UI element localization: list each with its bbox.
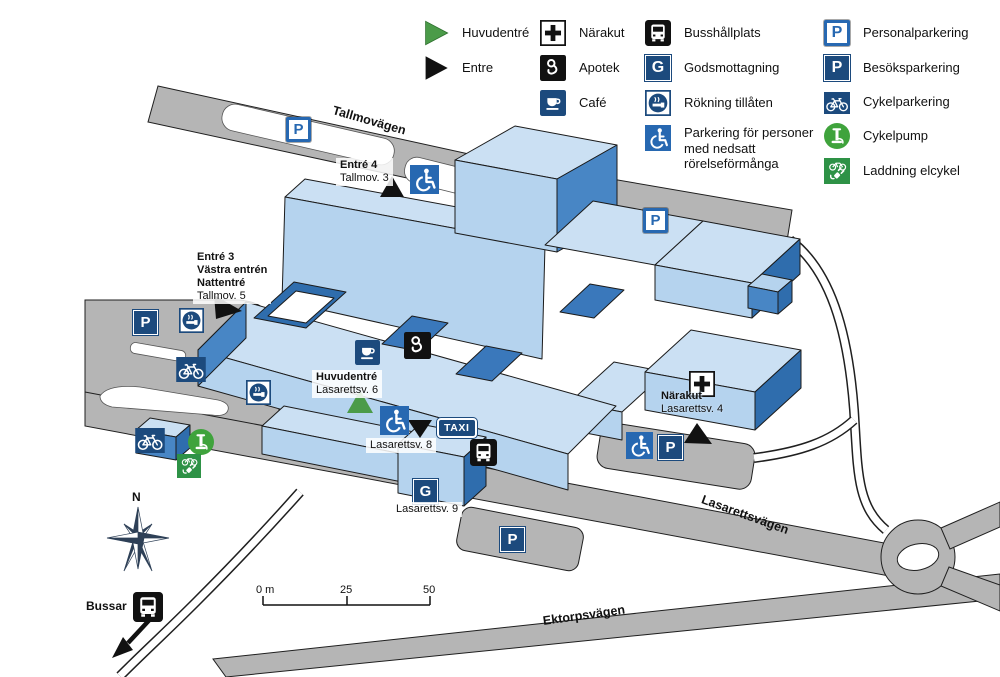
legend-label: Huvudentré (462, 25, 529, 41)
parking-letter: P (665, 440, 675, 455)
legend-item-cafe: Café (540, 90, 625, 116)
road-ektorpsvagen (213, 574, 1000, 677)
lasarettsv9-label: Lasarettsv. 9 (392, 502, 462, 517)
legend-label: Cykelparkering (863, 94, 950, 110)
bicycle-pump-icon (824, 123, 850, 149)
visitor-parking-icon: P (824, 55, 850, 81)
wheelchair-icon (626, 432, 653, 459)
narakut-triangle-icon (684, 423, 712, 444)
legend-column-4: P Personalparkering P Besöksparkering Cy… (824, 20, 969, 193)
parking-letter: P (650, 213, 660, 228)
legend-item-besoksparkering: P Besöksparkering (824, 55, 969, 81)
scale-bar (263, 596, 430, 605)
bicycle-parking-icon (135, 428, 165, 453)
bus-stop-icon (133, 592, 163, 622)
legend-label: Personalparkering (863, 25, 969, 41)
legend-label: Rökning tillåten (684, 95, 773, 111)
scale-label-25: 25 (340, 584, 352, 596)
legend-label: Apotek (579, 60, 619, 76)
goods-reception-icon: G (413, 479, 438, 504)
bicycle-pump-icon (188, 429, 214, 455)
parking-letter: P (507, 532, 517, 547)
legend-item-personalparkering: P Personalparkering (824, 20, 969, 46)
pharmacy-icon (404, 332, 431, 359)
wheelchair-icon (410, 165, 439, 194)
legend-item-apotek: Apotek (540, 55, 625, 81)
emergency-clinic-icon (540, 20, 566, 46)
goods-letter: G (420, 484, 432, 499)
cafe-icon (540, 90, 566, 116)
staff-parking-icon: P (286, 117, 311, 142)
legend-item-narakut: Närakut (540, 20, 625, 46)
taxi-sign-icon: TAXI (437, 418, 477, 438)
staff-parking-icon: P (643, 208, 668, 233)
bussar-label: Bussar (86, 599, 127, 613)
legend-label: Närakut (579, 25, 625, 41)
entrance-4-label: Entré 4 Tallmov. 3 (336, 158, 393, 186)
legend-label: Cykelpump (863, 128, 928, 144)
entrance-3-label: Entré 3 Västra entrén Nattentré Tallmov.… (193, 250, 271, 304)
disabled-parking-icon (645, 125, 671, 151)
bicycle-parking-icon (824, 92, 850, 114)
legend-label: Laddning elcykel (863, 163, 960, 179)
goods-reception-icon: G (645, 55, 671, 81)
legend-item-rokning: Rökning tillåten (645, 90, 836, 116)
taxi-label: TAXI (444, 423, 470, 434)
hospital-area-map: P P P P P G TAXI Entré 4 Tallmov. 3 Entr… (0, 0, 1000, 677)
compass-rose-icon (107, 507, 169, 571)
smoking-allowed-icon (179, 308, 204, 333)
compass-north-label: N (132, 490, 141, 504)
bus-stop-icon (645, 20, 671, 46)
visitor-parking-icon: P (658, 435, 683, 460)
roof-ramp-3 (560, 284, 624, 318)
parking-letter: P (293, 122, 303, 137)
scale-label-0: 0 m (256, 584, 274, 596)
parking-letter: P (140, 315, 150, 330)
road-branch-ne (941, 502, 1000, 549)
bus-stop-icon (470, 439, 497, 466)
legend-label: Café (579, 95, 606, 111)
main-entrance-triangle-icon (423, 20, 449, 46)
bicycle-parking-icon (176, 357, 206, 382)
pharmacy-icon (540, 55, 566, 81)
legend-label: Parkering för personer med nedsatt rörel… (684, 125, 836, 172)
legend-label: Besöksparkering (863, 60, 960, 76)
staff-parking-icon: P (824, 20, 850, 46)
legend-item-busshallplats: Busshållplats (645, 20, 836, 46)
legend-item-laddning-elcykel: Laddning elcykel (824, 158, 969, 184)
legend-item-huvudentre: Huvudentré (423, 20, 529, 46)
legend-item-cykelpump: Cykelpump (824, 123, 969, 149)
visitor-parking-icon: P (133, 310, 158, 335)
legend-item-parkering-nedsatt: Parkering för personer med nedsatt rörel… (645, 125, 836, 172)
smoking-allowed-icon (246, 380, 271, 405)
visitor-parking-icon: P (500, 527, 525, 552)
main-entrance-label: Huvudentré Lasarettsv. 6 (312, 370, 382, 398)
lasarettsv8-label: Lasarettsv. 8 (366, 438, 436, 453)
courtyard-floor (268, 291, 334, 323)
smoking-allowed-icon (645, 90, 671, 116)
e-bike-charging-icon (177, 454, 201, 478)
legend-item-cykelparkering: Cykelparkering (824, 90, 969, 114)
narakut-label: Närakut Lasarettsv. 4 (657, 389, 727, 417)
legend-column-2: Närakut Apotek Café (540, 20, 625, 125)
legend-label: Entre (462, 60, 493, 76)
e-bike-charging-icon (824, 158, 850, 184)
cafe-icon (355, 340, 380, 365)
legend-column-3: Busshållplats G Godsmottagning Rökning t… (645, 20, 836, 181)
legend-label: Godsmottagning (684, 60, 779, 76)
legend-column-1: Huvudentré Entre (423, 20, 529, 90)
legend-label: Busshållplats (684, 25, 761, 41)
legend-item-godsmottagning: G Godsmottagning (645, 55, 836, 81)
entrance-triangle-icon (423, 55, 449, 81)
legend-item-entre: Entre (423, 55, 529, 81)
scale-label-50: 50 (423, 584, 435, 596)
wheelchair-icon (380, 406, 409, 435)
